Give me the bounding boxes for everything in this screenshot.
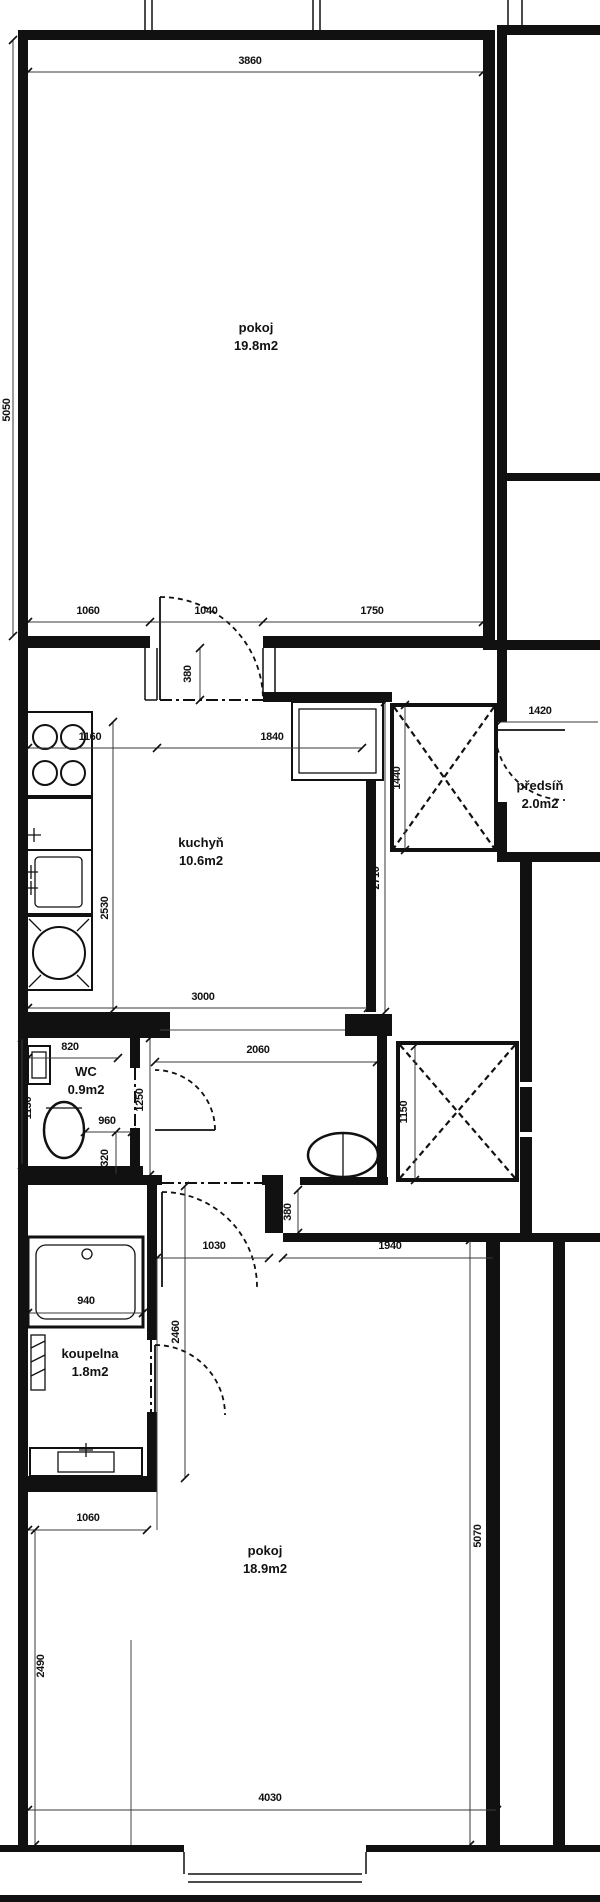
dimension-label: 3860	[238, 55, 261, 67]
wall-stubs	[131, 0, 522, 1882]
room-label-wc: WC	[75, 1064, 97, 1079]
labels: pokoj19.8m2kuchyň10.6m2předsíň2.0m2WC0.9…	[1, 55, 564, 1804]
dimension-label: 4030	[258, 1792, 281, 1804]
dimension-label: 1840	[260, 731, 283, 743]
dimension-label: 2530	[99, 896, 111, 919]
dimension-lines	[9, 36, 598, 1849]
washbasin-icon	[308, 1133, 378, 1177]
door-hall-kitchen	[155, 1070, 215, 1130]
dimension-label: 1150	[398, 1100, 410, 1123]
bathroom-sink-icon	[30, 1443, 142, 1476]
dimension-label: 1420	[528, 705, 551, 717]
dimension-label: 2060	[246, 1044, 269, 1056]
radiator-icon	[31, 1335, 45, 1390]
stove-icon	[26, 712, 92, 796]
hand-basin-icon	[28, 1046, 50, 1084]
dimension-label: 380	[182, 665, 194, 683]
floor-plan-page: pokoj19.8m2kuchyň10.6m2předsíň2.0m2WC0.9…	[0, 0, 600, 1902]
room-label-predsin: předsíň	[517, 778, 564, 793]
dimension-label: 1940	[378, 1240, 401, 1252]
dimension-label: 1060	[76, 605, 99, 617]
room-area-koupelna: 1.8m2	[72, 1364, 109, 1379]
dimension-label: 380	[282, 1203, 294, 1221]
shaft-1	[392, 705, 496, 850]
dimension-label: 1160	[79, 731, 102, 743]
room-label-pokoj-1: pokoj	[239, 320, 274, 335]
dimension-label: 2460	[170, 1320, 182, 1343]
room-label-kuchyn: kuchyň	[178, 835, 224, 850]
shaft-2	[398, 1043, 517, 1180]
dimension-label: 3000	[191, 991, 214, 1003]
dimension-label: 1130	[22, 1096, 34, 1119]
room-label-koupelna: koupelna	[61, 1346, 119, 1361]
dimension-label: 1250	[134, 1088, 146, 1111]
dimension-label: 2490	[35, 1654, 47, 1677]
dimension-label: 1060	[76, 1512, 99, 1524]
room-label-pokoj-2: pokoj	[248, 1543, 283, 1558]
cabinet	[292, 702, 383, 780]
dimension-label: 940	[77, 1295, 95, 1307]
dimension-label: 960	[98, 1115, 116, 1127]
walls	[0, 25, 600, 1902]
room-area-pokoj-2: 18.9m2	[243, 1561, 287, 1576]
room-area-predsin: 2.0m2	[522, 796, 559, 811]
room-area-pokoj-1: 19.8m2	[234, 338, 278, 353]
dimension-label: 320	[99, 1149, 111, 1167]
dimension-label: 1440	[391, 766, 403, 789]
dimension-label: 1750	[360, 605, 383, 617]
door-koupelna	[155, 1345, 225, 1415]
dimension-label: 5050	[1, 398, 13, 421]
room-area-kuchyn: 10.6m2	[179, 853, 223, 868]
floor-plan-svg: pokoj19.8m2kuchyň10.6m2předsíň2.0m2WC0.9…	[0, 0, 600, 1902]
dimension-label: 820	[61, 1041, 79, 1053]
dimension-label: 5070	[472, 1524, 484, 1547]
dimension-label: 1030	[202, 1240, 225, 1252]
toilet-icon	[44, 1102, 84, 1158]
dimension-label: 2710	[370, 866, 382, 889]
kitchen-sink-icon	[24, 850, 92, 914]
kitchen-counter-icon	[26, 798, 92, 850]
washing-machine-icon	[26, 916, 92, 990]
room-area-wc: 0.9m2	[68, 1082, 105, 1097]
dimension-label: 1040	[194, 605, 217, 617]
